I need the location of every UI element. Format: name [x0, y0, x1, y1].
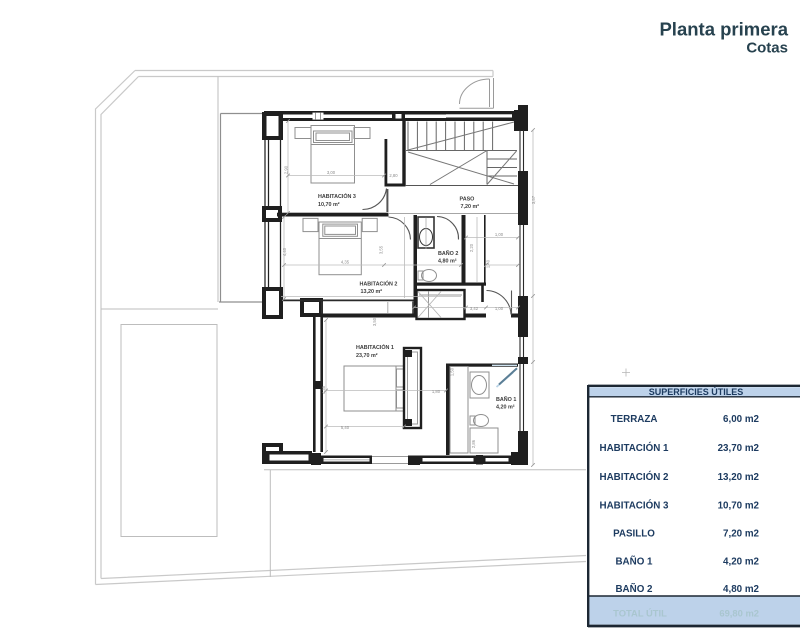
svg-text:BAÑO 1: BAÑO 1: [615, 557, 653, 568]
svg-text:10,70 m2: 10,70 m2: [718, 501, 760, 512]
svg-text:13,20 m²: 13,20 m²: [361, 289, 383, 295]
svg-text:23,70 m2: 23,70 m2: [718, 443, 760, 454]
svg-text:BAÑO 2: BAÑO 2: [615, 584, 653, 595]
svg-text:PASILLO: PASILLO: [613, 529, 655, 540]
svg-text:4,20 m2: 4,20 m2: [723, 557, 760, 568]
svg-text:4,35: 4,35: [321, 385, 326, 394]
svg-text:4,80 m²: 4,80 m²: [438, 259, 457, 265]
svg-text:BAÑO 1: BAÑO 1: [496, 396, 516, 403]
svg-text:10,70 m²: 10,70 m²: [318, 202, 340, 208]
svg-text:5,40: 5,40: [341, 425, 350, 430]
svg-text:HABITACIÓN 2: HABITACIÓN 2: [600, 471, 669, 483]
svg-text:SUPERFICIES ÚTILES: SUPERFICIES ÚTILES: [649, 386, 744, 397]
svg-text:2,80: 2,80: [389, 173, 398, 178]
svg-text:3,57: 3,57: [531, 195, 536, 204]
svg-text:HABITACIÓN 1: HABITACIÓN 1: [356, 343, 394, 351]
svg-text:4,40: 4,40: [282, 247, 287, 256]
svg-text:23,70 m²: 23,70 m²: [356, 353, 378, 359]
svg-text:1,50: 1,50: [450, 367, 455, 376]
svg-text:3,50: 3,50: [372, 317, 377, 326]
svg-text:TOTAL ÚTIL: TOTAL ÚTIL: [613, 608, 667, 619]
svg-text:HABITACIÓN 3: HABITACIÓN 3: [318, 192, 356, 200]
svg-text:2,90: 2,90: [284, 165, 289, 174]
svg-text:13,20 m2: 13,20 m2: [718, 472, 760, 483]
svg-text:1,00: 1,00: [495, 232, 504, 237]
svg-text:2,20: 2,20: [469, 243, 474, 252]
svg-text:3,00: 3,00: [327, 170, 336, 175]
svg-text:4,80 m2: 4,80 m2: [723, 584, 760, 595]
svg-text:HABITACIÓN 1: HABITACIÓN 1: [600, 442, 669, 454]
svg-text:1,00: 1,00: [495, 306, 504, 311]
svg-text:TERRAZA: TERRAZA: [611, 414, 658, 425]
svg-text:7,20 m²: 7,20 m²: [461, 204, 480, 210]
svg-text:69,80 m2: 69,80 m2: [719, 608, 759, 619]
svg-text:Cotas: Cotas: [746, 40, 788, 57]
svg-text:7,20 m2: 7,20 m2: [723, 529, 760, 540]
svg-text:4,35: 4,35: [341, 260, 350, 265]
svg-text:3,55: 3,55: [379, 245, 384, 254]
svg-text:Planta primera: Planta primera: [659, 19, 788, 40]
svg-text:1,40: 1,40: [486, 259, 491, 268]
svg-text:HABITACIÓN 3: HABITACIÓN 3: [600, 500, 669, 512]
svg-text:PASO: PASO: [460, 197, 475, 203]
svg-text:1,80: 1,80: [432, 389, 441, 394]
svg-text:6,00 m2: 6,00 m2: [723, 414, 760, 425]
svg-text:BAÑO 2: BAÑO 2: [438, 250, 458, 257]
svg-text:3,42: 3,42: [470, 306, 479, 311]
svg-text:2,86: 2,86: [471, 439, 476, 448]
svg-text:HABITACIÓN 2: HABITACIÓN 2: [360, 280, 398, 288]
svg-text:4,20 m²: 4,20 m²: [496, 405, 515, 411]
